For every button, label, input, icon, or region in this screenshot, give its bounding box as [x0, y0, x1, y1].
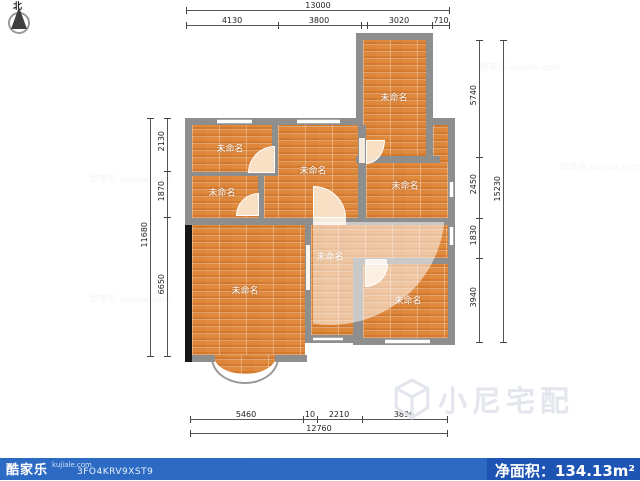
dim-right-seg: 2450	[469, 174, 478, 194]
room-label: 未命名	[208, 186, 235, 199]
tile-watermark: 酷家乐 kujiale.com	[560, 160, 640, 173]
wall-segment	[353, 258, 363, 345]
window	[217, 119, 252, 124]
watermark-text: 小尼宅配	[438, 378, 574, 420]
room-label: 未命名	[380, 91, 407, 104]
wall-segment	[356, 33, 433, 40]
dim-top-seg: 3800	[309, 16, 329, 25]
door-gap	[313, 218, 346, 225]
room-label: 未命名	[316, 250, 343, 263]
window	[449, 182, 454, 197]
wall-segment	[356, 33, 363, 125]
dim-line-bottom-segments	[190, 419, 448, 420]
room-label: 未命名	[394, 294, 421, 307]
room-label: 未命名	[216, 142, 243, 155]
dim-bottom-seg: 5460	[236, 410, 256, 419]
dim-bottom-seg: 2210	[329, 410, 349, 419]
dim-line-top-segments	[186, 25, 450, 26]
wall-segment	[275, 355, 307, 362]
window	[297, 119, 340, 124]
window	[449, 227, 454, 245]
plan-code: 3FO4KRV9XST9	[77, 467, 153, 477]
dim-right-total: 15230	[493, 176, 502, 201]
floor-patch	[264, 176, 278, 218]
kujiale-logo: 酷家乐	[6, 459, 48, 478]
dim-top-total: 13000	[305, 1, 330, 10]
dim-bottom-seg: 10	[305, 410, 315, 419]
dim-top-seg: 4130	[222, 16, 242, 25]
dim-line-right-segments	[479, 40, 480, 343]
dim-left-seg: 2130	[157, 131, 166, 151]
dim-left-seg: 1870	[157, 181, 166, 201]
room-label: 未命名	[391, 179, 418, 192]
dim-bottom-total: 12760	[306, 424, 331, 433]
tile-watermark: 酷家乐 kujiale.com	[480, 60, 561, 73]
brand-watermark: 小尼宅配	[394, 378, 574, 420]
wall-segment-dark	[185, 218, 192, 362]
room-label: 未命名	[231, 284, 258, 297]
dim-left-seg: 6650	[157, 274, 166, 294]
window	[313, 337, 343, 341]
room-label: 未命名	[299, 164, 326, 177]
dim-line-top-total	[186, 10, 450, 11]
window	[385, 339, 430, 344]
dim-line-left-total	[150, 118, 151, 357]
wall-segment	[185, 118, 192, 218]
floor-corridor-left	[311, 258, 353, 335]
wall-segment	[426, 33, 433, 163]
dim-right-seg: 1830	[469, 225, 478, 245]
dim-bottom-seg: 3890	[394, 410, 414, 419]
dim-line-left-segments	[167, 118, 168, 357]
dim-top-seg: 710	[433, 16, 448, 25]
dim-line-bottom-total	[190, 433, 448, 434]
dim-right-seg: 5740	[469, 85, 478, 105]
dim-left-total: 11680	[140, 222, 149, 247]
dim-top-seg: 3020	[389, 16, 409, 25]
dim-line-right-total	[503, 40, 504, 343]
door-gap	[359, 138, 365, 163]
sliding-door	[306, 245, 310, 290]
dim-right-seg: 3940	[469, 287, 478, 307]
wall-segment	[192, 355, 215, 362]
net-area: 净面积：134.13m²	[495, 460, 635, 481]
compass-arrow-icon	[11, 7, 27, 29]
